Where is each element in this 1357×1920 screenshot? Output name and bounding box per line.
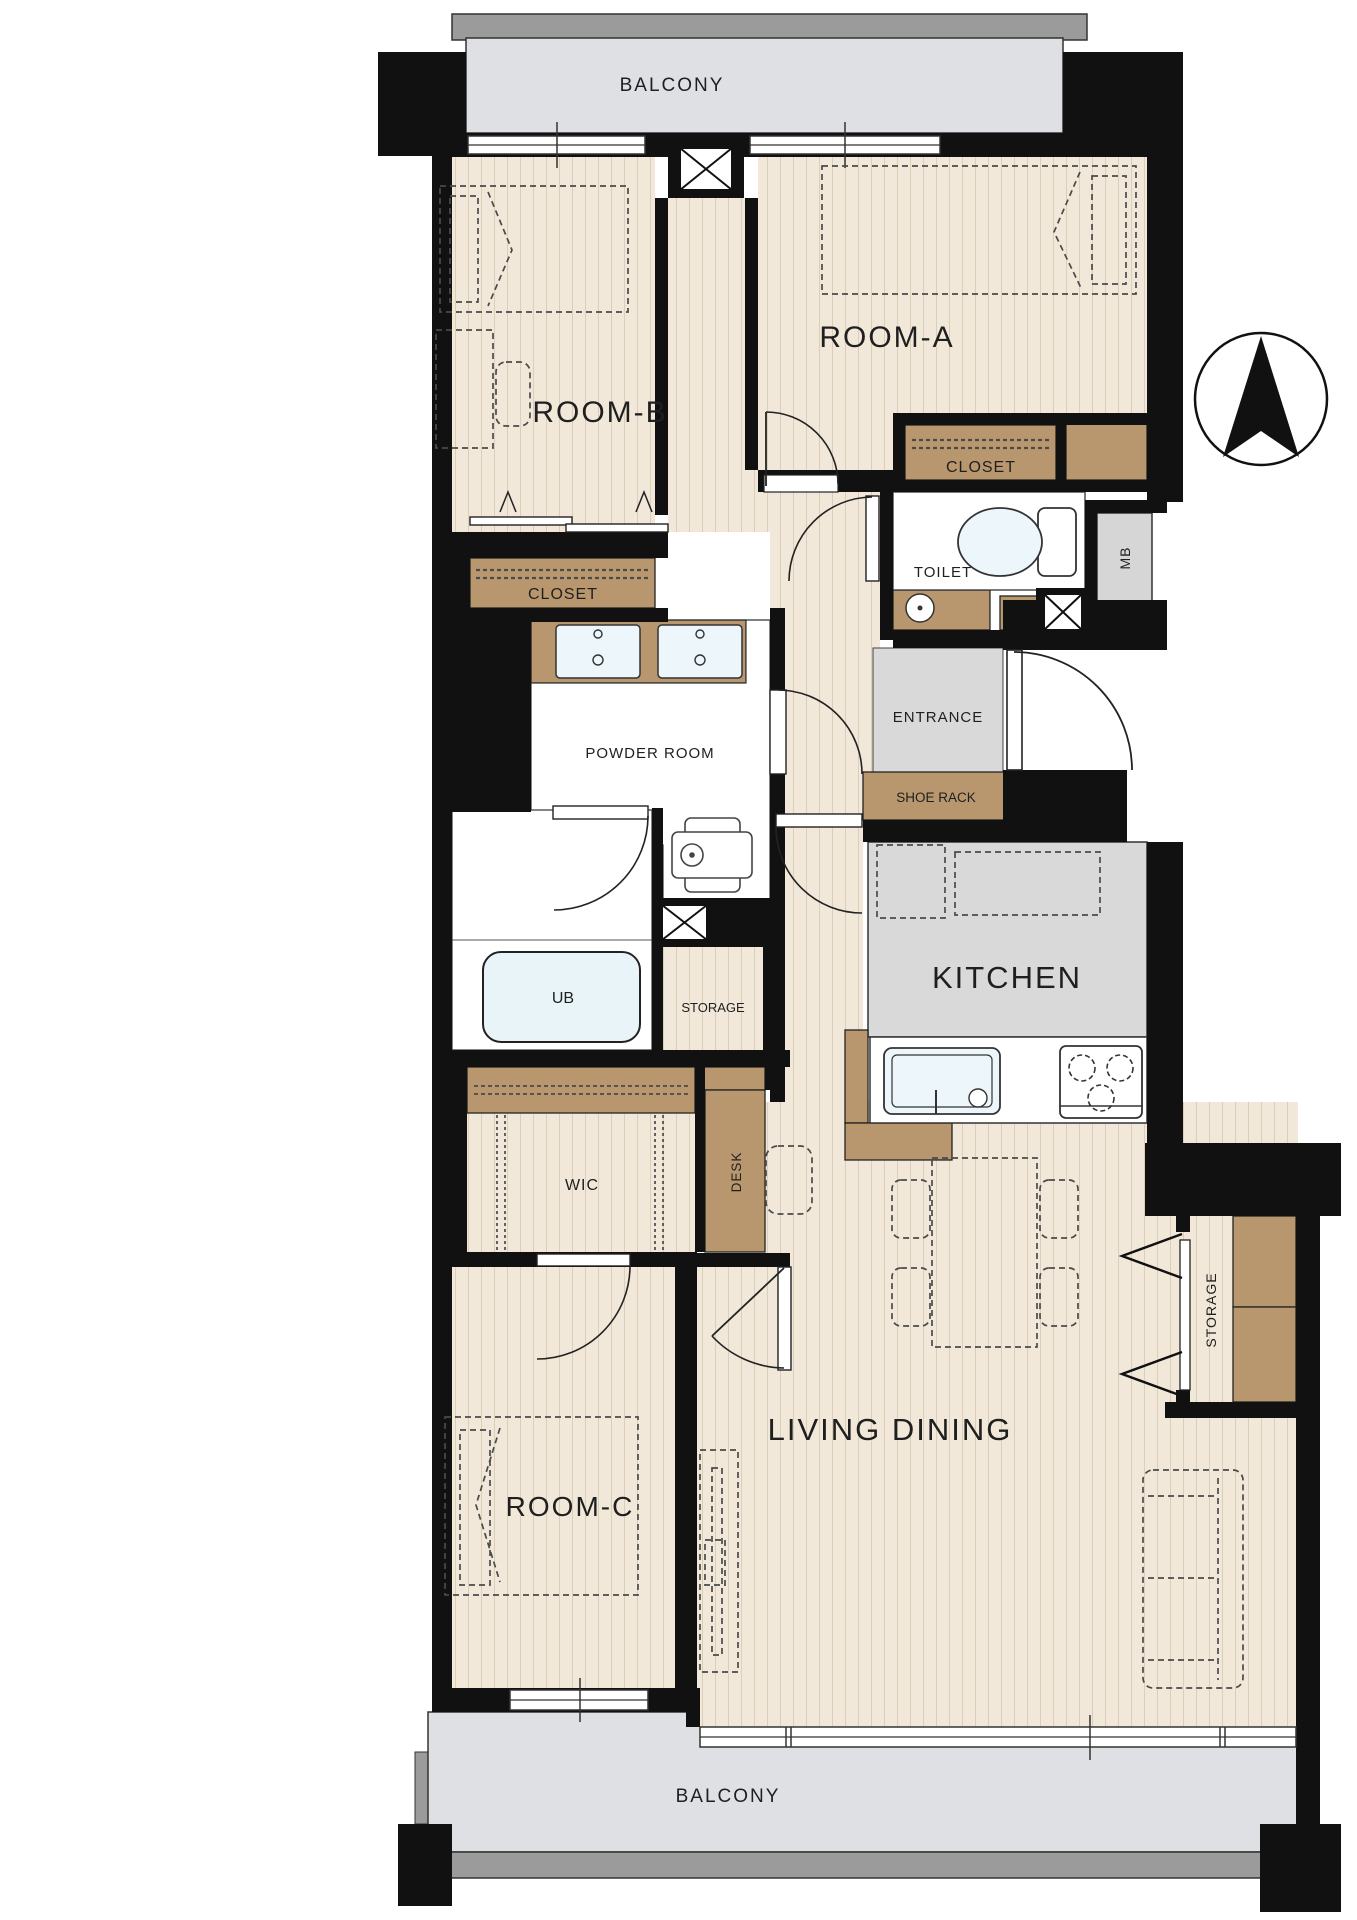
storage-living-cabinet-top	[1233, 1216, 1296, 1307]
wall-storage-bottom	[1165, 1402, 1320, 1418]
corridor-floor	[668, 198, 745, 515]
floor-plan-drawing: BALCONY BALCONY	[0, 0, 1357, 1920]
wall-storage-top	[1145, 1143, 1341, 1216]
wic-label: WIC	[565, 1177, 599, 1194]
balcony-top-railing	[452, 14, 1087, 40]
room-b-floor	[452, 157, 655, 532]
balcony-bottom-railing	[415, 1852, 1330, 1878]
powder-sink-left	[556, 625, 640, 678]
wall-column-bl	[398, 1824, 452, 1906]
storage-living-cabinet-bottom	[1233, 1307, 1296, 1402]
balcony-top-label: BALCONY	[620, 75, 725, 96]
desk-upper-cabinet	[697, 1067, 765, 1090]
gas-stove-icon	[1060, 1046, 1142, 1118]
kitchen-corridor-floor	[785, 842, 863, 1030]
room-a-label: ROOM-A	[819, 321, 954, 354]
kitchen-floor	[868, 842, 1147, 1037]
kitchen-counter-return-v	[845, 1030, 868, 1123]
wall-powder-east-b	[770, 774, 785, 845]
wall-entrance-bottom	[1003, 770, 1127, 842]
wall-living-east	[1296, 1418, 1320, 1827]
desk-label: DESK	[729, 1152, 744, 1193]
wall-room-b-east	[655, 198, 668, 515]
kitchen-sink-icon	[884, 1048, 1000, 1114]
wall-room-a-west	[745, 198, 758, 470]
wall-right-kitchen	[1147, 842, 1183, 1143]
wall-column-tr	[1063, 52, 1183, 157]
wall-wic-west	[432, 1050, 467, 1265]
wall-wic-east	[695, 1067, 705, 1252]
wic-shelf	[467, 1067, 695, 1113]
pipe-shaft-x-icon	[680, 148, 732, 190]
balcony-top-floor	[466, 38, 1063, 133]
toilet-label: TOILET	[914, 564, 972, 581]
wall-column-br	[1260, 1824, 1341, 1912]
wall-toilet-west	[880, 492, 893, 640]
kitchen-label: KITCHEN	[932, 960, 1082, 995]
room-c-label: ROOM-C	[506, 1491, 635, 1522]
hall-mid-floor	[770, 532, 880, 648]
entrance-door	[1007, 650, 1132, 770]
wall-living-door-band	[668, 1253, 790, 1267]
living-dining-label: LIVING DINING	[768, 1412, 1013, 1447]
balcony-bottom-left-rail	[415, 1752, 429, 1824]
mb-label: MB	[1117, 547, 1133, 570]
wall-wic-north	[432, 1050, 790, 1067]
floor-plan-canvas: BALCONY BALCONY	[0, 0, 1357, 1920]
powder-sink-right	[658, 625, 742, 678]
shoe-rack-label: SHOE RACK	[896, 790, 976, 805]
closet-room-a-label: CLOSET	[946, 459, 1016, 476]
closet-room-a-side	[1066, 423, 1147, 480]
pipe-shaft-x-icon	[1044, 594, 1082, 630]
storage-hall-label: STORAGE	[681, 1000, 745, 1015]
ub-label: UB	[552, 990, 574, 1007]
room-b-label: ROOM-B	[532, 396, 667, 429]
wall-room-b-south	[432, 532, 668, 558]
balcony-bottom-label: BALCONY	[676, 1786, 781, 1807]
wall-room-c-east	[675, 1267, 697, 1712]
north-arrow-icon	[1195, 333, 1327, 465]
powder-room-label: POWDER ROOM	[585, 745, 714, 762]
closet-room-b-label: CLOSET	[528, 586, 598, 603]
pipe-shaft-x-icon	[662, 905, 707, 940]
storage-living-label: STORAGE	[1203, 1272, 1219, 1347]
kitchen-counter-return-h	[845, 1123, 952, 1160]
toilet-fixture-icon	[958, 508, 1076, 576]
wall-storage-right	[1296, 1216, 1320, 1402]
balcony-top: BALCONY	[452, 14, 1087, 133]
living-dining-floor2	[697, 1265, 765, 1727]
kitchen-corridor-floor2	[785, 1030, 845, 1102]
wall-powder-east-a	[770, 608, 785, 690]
entrance-label: ENTRANCE	[893, 709, 984, 726]
wall-left	[432, 156, 452, 1712]
wall-right-room-a	[1147, 157, 1183, 502]
